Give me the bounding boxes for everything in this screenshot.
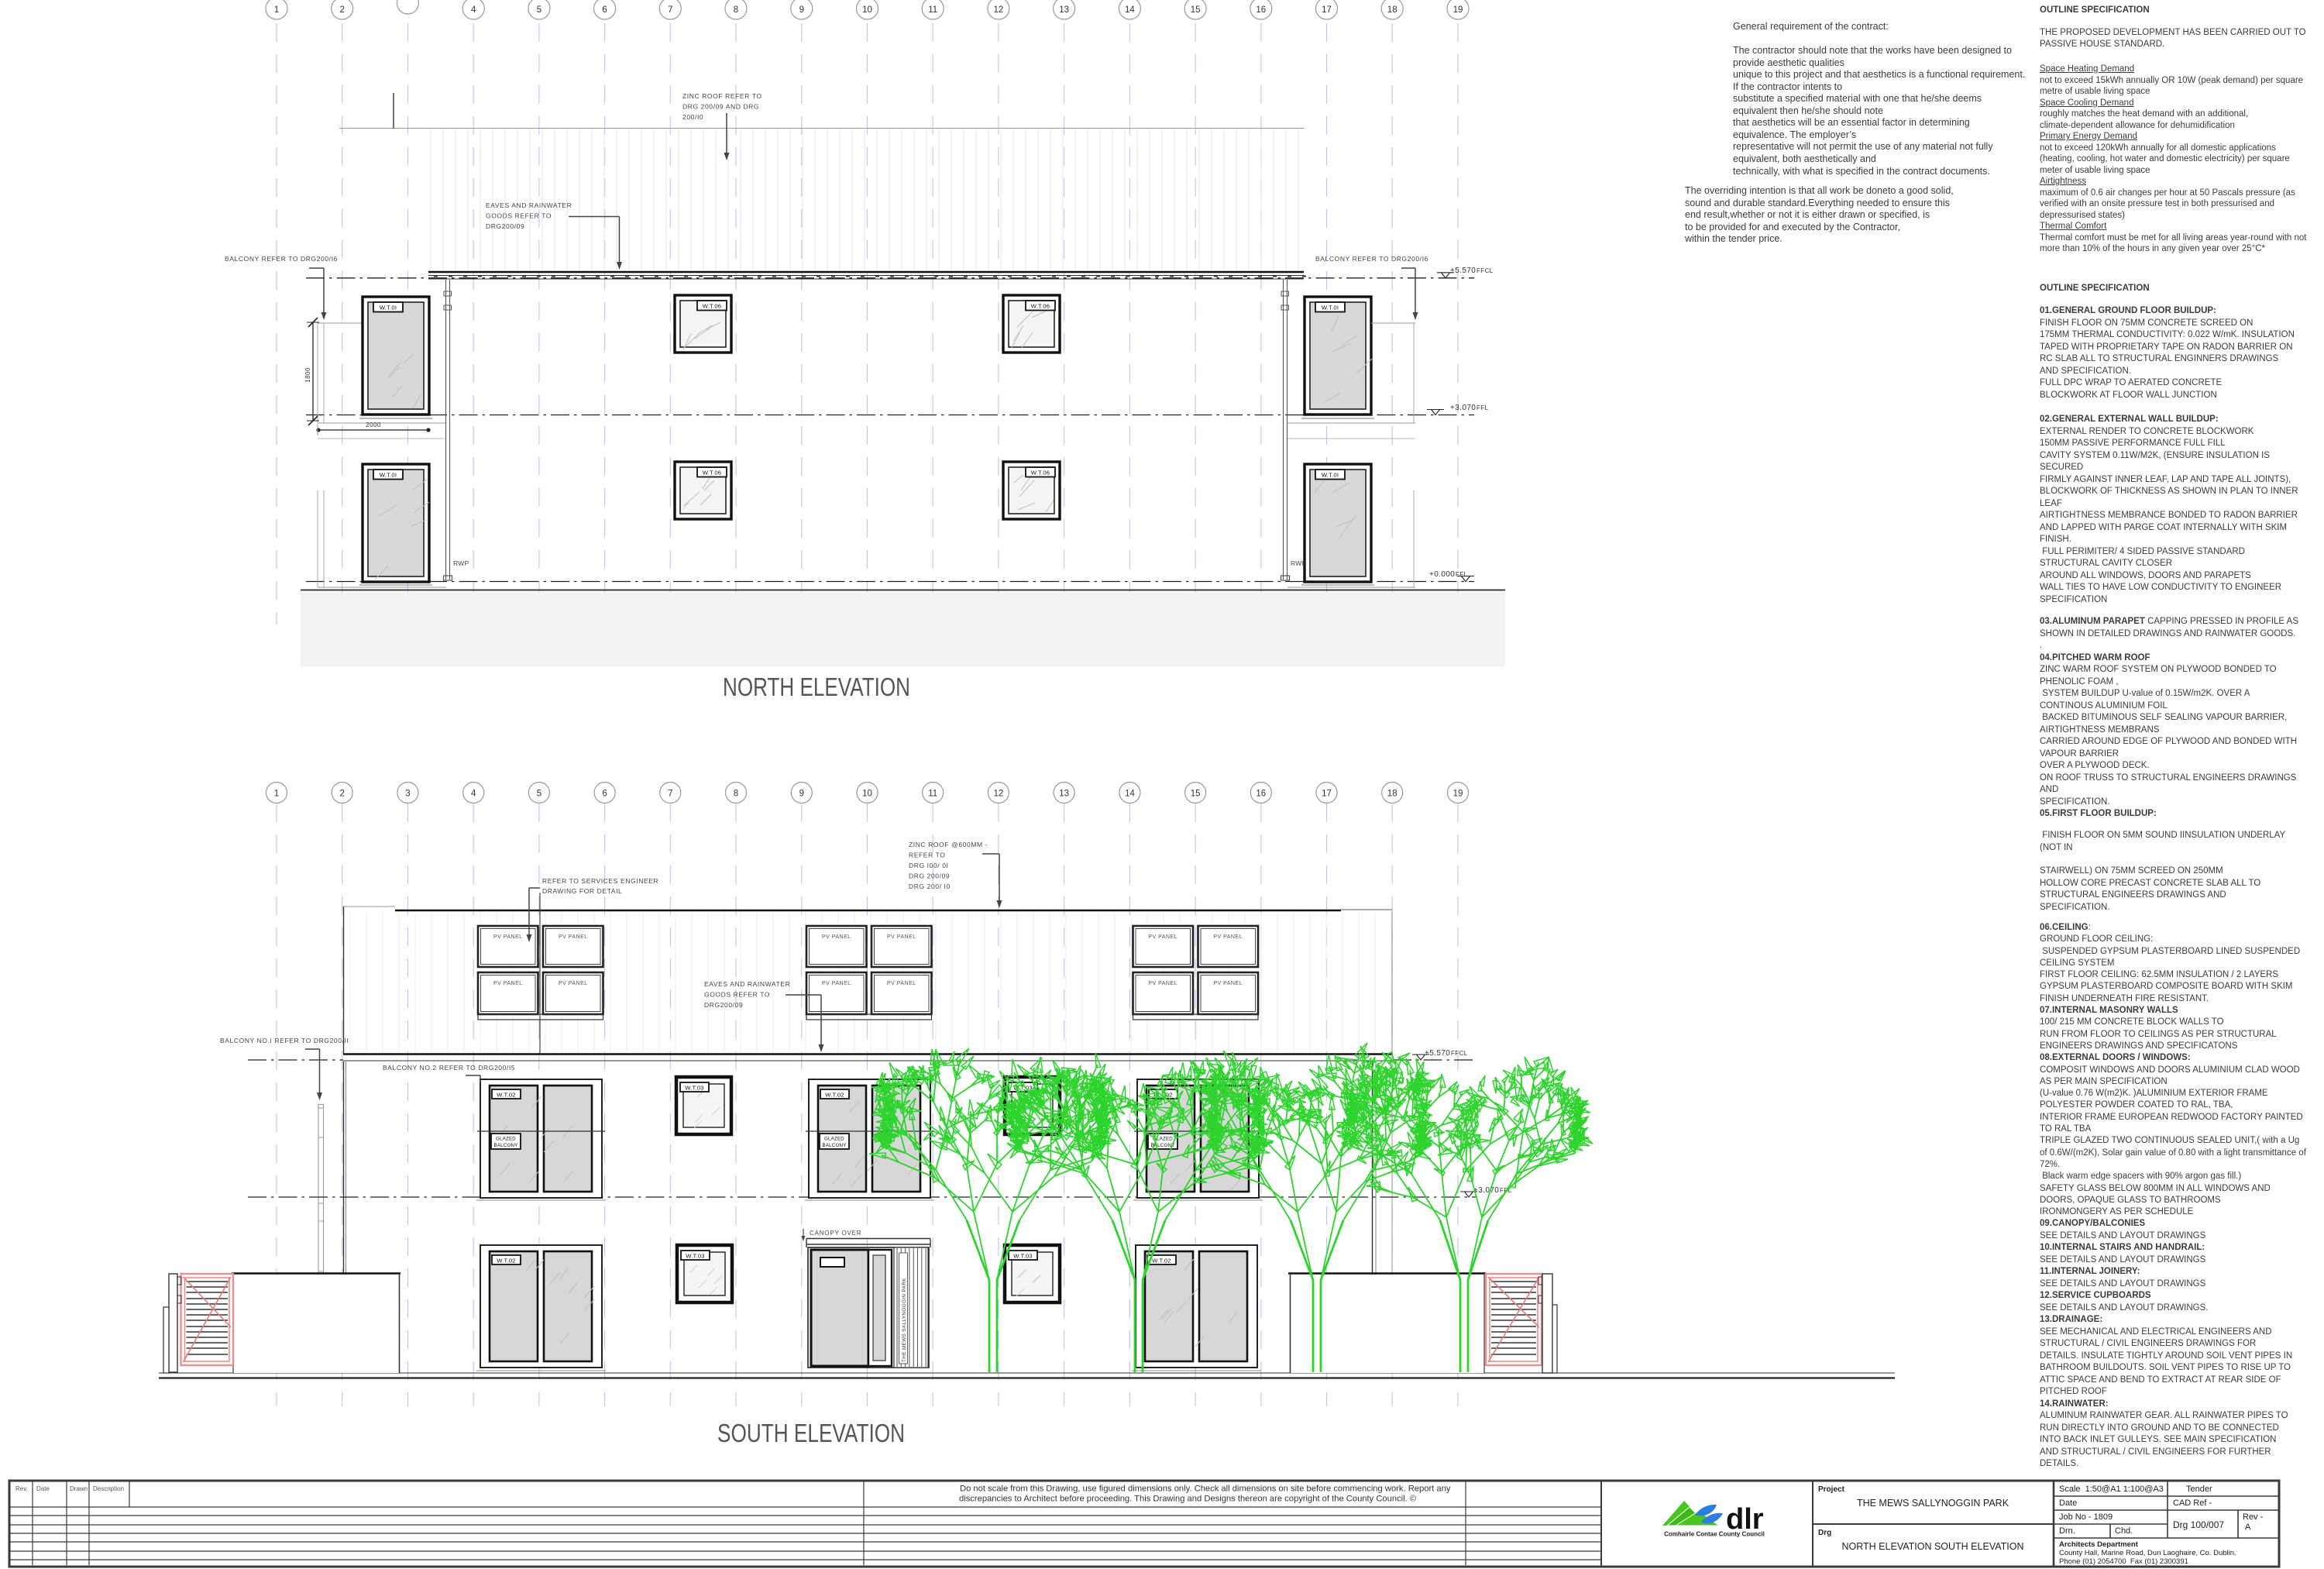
svg-text:Rev -: Rev - xyxy=(2243,1512,2264,1522)
svg-text:THE MEWS SALLYNOGGIN PARK: THE MEWS SALLYNOGGIN PARK xyxy=(1857,1498,2009,1509)
svg-text:10: 10 xyxy=(862,5,872,15)
svg-text:19: 19 xyxy=(1453,5,1463,15)
svg-text:BALCONY NO.2 REFER TO DRG200/I: BALCONY NO.2 REFER TO DRG200/I5 xyxy=(383,1064,515,1072)
svg-text:GOODS REFER TO: GOODS REFER TO xyxy=(486,212,552,220)
svg-text:RWP: RWP xyxy=(1291,559,1307,567)
svg-text:ZINC ROOF @600MM -: ZINC ROOF @600MM - xyxy=(909,841,988,848)
svg-text:11: 11 xyxy=(928,790,937,799)
svg-text:FFCL: FFCL xyxy=(1451,1050,1468,1057)
svg-text:Drawn: Drawn xyxy=(70,1485,88,1492)
svg-text:W.T.0I: W.T.0I xyxy=(1322,305,1339,311)
svg-text:18: 18 xyxy=(1387,790,1397,799)
svg-text:W.T.0I: W.T.0I xyxy=(380,472,397,479)
svg-text:14: 14 xyxy=(1125,5,1135,15)
svg-text:FFL: FFL xyxy=(1477,404,1489,411)
svg-text:W.T.02: W.T.02 xyxy=(497,1257,515,1264)
svg-text:5: 5 xyxy=(537,5,541,15)
svg-text:Job No - 1809: Job No - 1809 xyxy=(2059,1512,2113,1522)
svg-text:+3.070: +3.070 xyxy=(1450,404,1476,412)
svg-text:BALCONY REFER TO DRG200/I6: BALCONY REFER TO DRG200/I6 xyxy=(1315,255,1428,263)
svg-text:PV PANEL: PV PANEL xyxy=(1213,934,1243,940)
svg-text:13: 13 xyxy=(1059,5,1069,15)
svg-text:REFER TO: REFER TO xyxy=(909,852,945,859)
svg-text:Tender: Tender xyxy=(2186,1485,2212,1494)
svg-text:19: 19 xyxy=(1453,790,1463,799)
svg-text:7: 7 xyxy=(668,5,672,15)
svg-text:9: 9 xyxy=(799,790,804,799)
svg-text:discrepancies to Architect bef: discrepancies to Architect before procee… xyxy=(959,1495,1417,1504)
svg-text:W.T.02: W.T.02 xyxy=(497,1091,515,1098)
svg-text:17: 17 xyxy=(1322,790,1332,799)
svg-text:4: 4 xyxy=(471,5,476,15)
svg-text:6: 6 xyxy=(602,5,607,15)
svg-text:A: A xyxy=(2245,1523,2251,1532)
svg-text:8: 8 xyxy=(734,5,738,15)
svg-text:NORTH ELEVATION: NORTH ELEVATION xyxy=(723,673,910,701)
svg-text:BALCONY NO.I REFER TO DRG200/I: BALCONY NO.I REFER TO DRG200/II xyxy=(220,1037,349,1044)
svg-text:Date: Date xyxy=(2059,1498,2077,1508)
svg-text:+5.570: +5.570 xyxy=(1425,1049,1450,1058)
svg-text:17: 17 xyxy=(1322,5,1332,15)
svg-text:W.T.03: W.T.03 xyxy=(1013,1252,1032,1259)
svg-text:3: 3 xyxy=(405,790,410,799)
svg-text:1: 1 xyxy=(274,790,279,799)
svg-text:Chd.: Chd. xyxy=(2115,1526,2133,1536)
svg-text:CAD Ref -: CAD Ref - xyxy=(2173,1498,2212,1508)
svg-text:15: 15 xyxy=(1191,5,1201,15)
svg-text:W.T.0I: W.T.0I xyxy=(1322,472,1339,479)
svg-text:16: 16 xyxy=(1256,5,1266,15)
svg-text:GOODS REFER TO: GOODS REFER TO xyxy=(704,991,770,999)
svg-text:Scale 1:50@A1 1:100@A3: Scale 1:50@A1 1:100@A3 xyxy=(2059,1485,2164,1494)
svg-text:PV PANEL: PV PANEL xyxy=(822,934,851,940)
svg-text:W.T.03: W.T.03 xyxy=(686,1252,704,1259)
svg-text:NORTH ELEVATION SOUTH ELEVATIO: NORTH ELEVATION SOUTH ELEVATION xyxy=(1842,1541,2024,1552)
svg-text:PV PANEL: PV PANEL xyxy=(559,981,588,986)
svg-text:County Hall, Marine Road, Dun: County Hall, Marine Road, Dun Laoghaire,… xyxy=(2059,1549,2236,1557)
svg-text:Description: Description xyxy=(93,1485,124,1492)
svg-text:Project: Project xyxy=(1818,1485,1845,1494)
svg-text:14: 14 xyxy=(1125,790,1135,799)
svg-text:CANOPY OVER: CANOPY OVER xyxy=(810,1230,861,1237)
svg-text:4: 4 xyxy=(471,790,476,799)
svg-text:Architects Department: Architects Department xyxy=(2059,1540,2139,1549)
svg-text:15: 15 xyxy=(1191,790,1201,799)
svg-text:Drg: Drg xyxy=(1818,1529,1831,1537)
svg-text:PV PANEL: PV PANEL xyxy=(1213,981,1243,986)
svg-text:FFCL: FFCL xyxy=(1477,267,1494,274)
svg-text:10: 10 xyxy=(862,790,872,799)
svg-text:11: 11 xyxy=(928,5,937,15)
svg-text:THE MEWS SALLYNOGGIN PARK: THE MEWS SALLYNOGGIN PARK xyxy=(902,1278,907,1362)
svg-text:6: 6 xyxy=(602,790,607,799)
svg-text:SOUTH ELEVATION: SOUTH ELEVATION xyxy=(717,1419,905,1447)
svg-text:7: 7 xyxy=(668,790,672,799)
svg-text:8: 8 xyxy=(734,790,738,799)
svg-text:DRG I00/ 0I: DRG I00/ 0I xyxy=(909,862,948,869)
svg-text:PV PANEL: PV PANEL xyxy=(1148,981,1177,986)
svg-text:W.T.02: W.T.02 xyxy=(1152,1257,1171,1264)
svg-text:PV PANEL: PV PANEL xyxy=(493,981,523,986)
svg-text:Date: Date xyxy=(36,1485,50,1492)
svg-text:2: 2 xyxy=(339,5,344,15)
svg-text:PV PANEL: PV PANEL xyxy=(1148,934,1177,940)
svg-text:DRG 200/ I0: DRG 200/ I0 xyxy=(909,883,951,890)
svg-text:+3.070: +3.070 xyxy=(1473,1186,1499,1195)
svg-text:GLAZED: GLAZED xyxy=(496,1137,516,1142)
svg-text:W.T.06: W.T.06 xyxy=(703,470,721,477)
svg-text:GLAZED: GLAZED xyxy=(824,1137,844,1142)
svg-text:DRG200/09: DRG200/09 xyxy=(704,1001,743,1009)
svg-text:W.T.0I: W.T.0I xyxy=(380,305,397,311)
svg-text:+5.570: +5.570 xyxy=(1450,267,1476,275)
svg-text:12: 12 xyxy=(994,790,1004,799)
svg-text:EAVES AND RAINWATER: EAVES AND RAINWATER xyxy=(486,201,572,209)
svg-text:Drn.: Drn. xyxy=(2059,1526,2075,1536)
svg-text:1: 1 xyxy=(274,5,279,15)
svg-text:PV PANEL: PV PANEL xyxy=(887,934,916,940)
svg-text:W.T.06: W.T.06 xyxy=(703,303,721,310)
svg-text:EAVES AND RAINWATER: EAVES AND RAINWATER xyxy=(704,980,790,988)
svg-text:DRG 200/09 AND DRG: DRG 200/09 AND DRG xyxy=(682,103,759,111)
svg-text:13: 13 xyxy=(1059,790,1069,799)
svg-text:DRG200/09: DRG200/09 xyxy=(486,222,524,230)
svg-text:Phone (01) 2054700 Fax (01) 2: Phone (01) 2054700 Fax (01) 2300391 xyxy=(2059,1557,2188,1566)
svg-text:W.T.03: W.T.03 xyxy=(685,1084,703,1091)
svg-text:PV PANEL: PV PANEL xyxy=(493,934,523,940)
svg-text:DRAWING FOR DETAIL: DRAWING FOR DETAIL xyxy=(542,887,622,895)
svg-text:2: 2 xyxy=(339,790,344,799)
svg-text:RWP: RWP xyxy=(453,559,469,567)
svg-text:9: 9 xyxy=(799,5,804,15)
svg-text:ZINC ROOF REFER TO: ZINC ROOF REFER TO xyxy=(682,92,762,100)
svg-text:W.T.06: W.T.06 xyxy=(1031,303,1050,310)
svg-text:16: 16 xyxy=(1256,790,1266,799)
svg-text:DRG 200/09: DRG 200/09 xyxy=(909,872,950,880)
svg-text:PV PANEL: PV PANEL xyxy=(822,981,851,986)
svg-text:Drg 100/007: Drg 100/007 xyxy=(2173,1519,2224,1530)
svg-text:PV PANEL: PV PANEL xyxy=(887,981,916,986)
svg-text:Rev.: Rev. xyxy=(15,1485,28,1492)
svg-text:W.T.02: W.T.02 xyxy=(825,1091,844,1098)
svg-text:+0.000: +0.000 xyxy=(1429,570,1455,579)
svg-text:200/I0: 200/I0 xyxy=(682,113,703,121)
svg-text:18: 18 xyxy=(1387,5,1397,15)
svg-text:BALCONY: BALCONY xyxy=(494,1143,518,1148)
svg-text:Do not scale from this Drawing: Do not scale from this Drawing, use figu… xyxy=(960,1485,1451,1494)
svg-text:W.T.06: W.T.06 xyxy=(1031,470,1050,477)
svg-text:BALCONY: BALCONY xyxy=(823,1143,847,1148)
svg-text:12: 12 xyxy=(994,5,1004,15)
svg-text:2000: 2000 xyxy=(366,421,381,428)
svg-text:5: 5 xyxy=(537,790,541,799)
svg-text:BALCONY REFER TO DRG200/I6: BALCONY REFER TO DRG200/I6 xyxy=(225,255,338,263)
svg-text:REFER TO SERVICES ENGINEER: REFER TO SERVICES ENGINEER xyxy=(542,877,658,885)
svg-text:1800: 1800 xyxy=(304,367,311,383)
svg-text:Comhairle Contae County Counci: Comhairle Contae County Council xyxy=(1664,1531,1765,1538)
svg-text:PV PANEL: PV PANEL xyxy=(559,934,588,940)
